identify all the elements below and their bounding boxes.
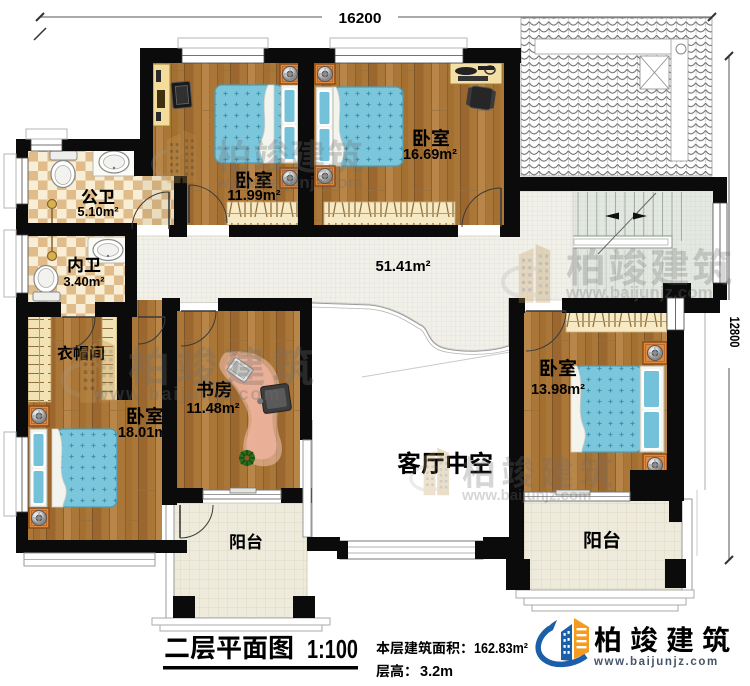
svg-text:3.40m²: 3.40m²	[63, 274, 105, 289]
svg-text:16200: 16200	[339, 10, 382, 27]
svg-text:16.69m²: 16.69m²	[403, 147, 457, 163]
svg-text:www.baijunjz.com: www.baijunjz.com	[565, 283, 713, 302]
svg-text:www.baijunjz.com: www.baijunjz.com	[93, 384, 281, 404]
svg-text:12800: 12800	[727, 317, 742, 348]
svg-text:162.83m²: 162.83m²	[474, 641, 528, 657]
svg-text:13.98m²: 13.98m²	[531, 382, 585, 398]
svg-text:1:100: 1:100	[307, 634, 358, 664]
svg-text:www.baijunjz.com: www.baijunjz.com	[593, 656, 719, 668]
svg-text:www.baijunjz.com: www.baijunjz.com	[461, 487, 591, 504]
svg-text:3.2m: 3.2m	[420, 664, 453, 680]
svg-text:www.baijunjz.com: www.baijunjz.com	[215, 173, 363, 192]
svg-text:51.41m²: 51.41m²	[376, 258, 431, 275]
svg-text:5.10m²: 5.10m²	[77, 204, 119, 219]
